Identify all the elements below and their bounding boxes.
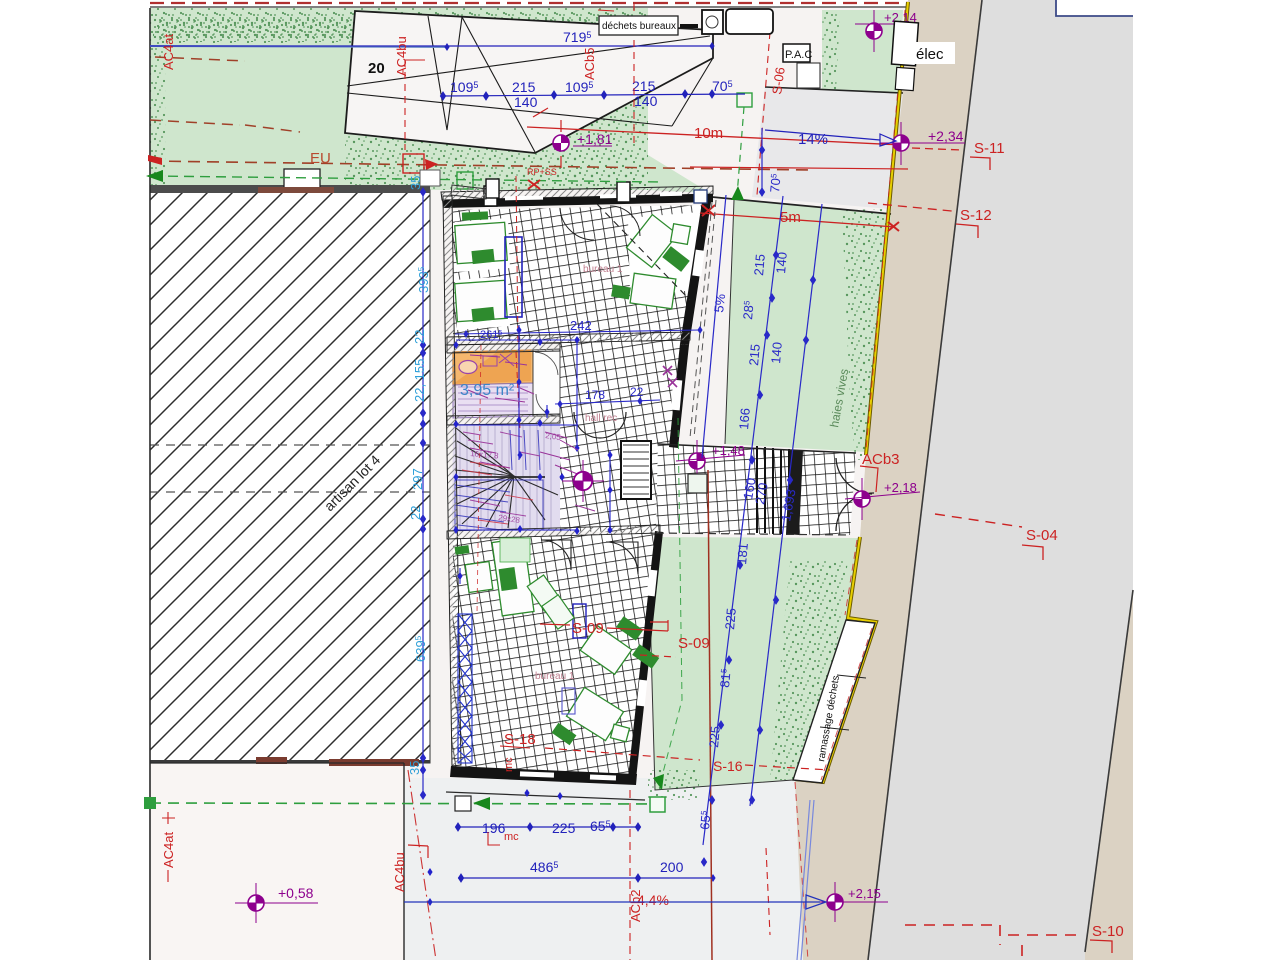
svg-text:5%: 5% <box>711 292 728 313</box>
svg-text:AC4at: AC4at <box>161 33 176 70</box>
svg-text:P.A.C: P.A.C <box>785 49 812 61</box>
svg-text:215: 215 <box>512 79 536 95</box>
svg-text:AC4bu: AC4bu <box>394 36 409 76</box>
svg-text:3,95 m²: 3,95 m² <box>460 382 515 399</box>
svg-text:178: 178 <box>585 388 605 402</box>
svg-text:297: 297 <box>410 468 425 490</box>
svg-text:225: 225 <box>552 820 576 836</box>
svg-text:+2,15: +2,15 <box>848 886 881 901</box>
svg-text:ACb3: ACb3 <box>862 451 900 468</box>
svg-text:S-10: S-10 <box>1092 923 1124 940</box>
svg-text:S-16: S-16 <box>713 758 743 774</box>
svg-text:22: 22 <box>408 506 423 520</box>
svg-text:215: 215 <box>632 78 656 94</box>
svg-text:196: 196 <box>482 820 506 836</box>
svg-text:215: 215 <box>746 343 763 366</box>
svg-text:225: 225 <box>722 607 739 630</box>
svg-text:215: 215 <box>751 253 768 276</box>
svg-text:bureau 1: bureau 1 <box>535 671 575 682</box>
svg-text:élec: élec <box>916 46 944 63</box>
svg-text:5m: 5m <box>780 209 801 226</box>
svg-text:200: 200 <box>660 859 684 875</box>
svg-text:EU: EU <box>310 150 331 167</box>
svg-text:140: 140 <box>768 341 785 364</box>
svg-text:S-09: S-09 <box>678 635 710 652</box>
svg-text:35: 35 <box>408 176 423 190</box>
svg-text:166: 166 <box>736 407 753 430</box>
svg-text:+1,81: +1,81 <box>577 131 613 147</box>
svg-text:242: 242 <box>570 318 592 333</box>
svg-text:hall rec: hall rec <box>585 413 617 424</box>
svg-text:10m: 10m <box>694 125 723 142</box>
svg-text:S-11: S-11 <box>974 140 1005 157</box>
svg-text:S-04: S-04 <box>1026 527 1058 544</box>
svg-text:déchets bureaux: déchets bureaux <box>602 21 676 32</box>
svg-text:S-12: S-12 <box>960 207 992 224</box>
svg-text:+2,18: +2,18 <box>884 480 917 495</box>
svg-text:RP+SS: RP+SS <box>527 167 557 177</box>
svg-text:181: 181 <box>734 542 751 565</box>
svg-text:+1,48: +1,48 <box>712 443 745 458</box>
svg-text:ACb5: ACb5 <box>582 47 597 80</box>
svg-text:AC4at: AC4at <box>161 831 176 868</box>
svg-text:140: 140 <box>773 251 790 274</box>
svg-text:+0,58: +0,58 <box>278 885 314 901</box>
svg-text:225: 225 <box>706 725 723 748</box>
svg-text:22: 22 <box>630 385 644 399</box>
svg-text:AC4bu: AC4bu <box>392 852 407 892</box>
svg-text:S-09: S-09 <box>572 620 604 637</box>
svg-text:22: 22 <box>412 330 427 344</box>
svg-text:S-18: S-18 <box>504 731 536 748</box>
svg-text:bureau 1: bureau 1 <box>583 264 623 275</box>
svg-text:140: 140 <box>634 93 658 109</box>
svg-text:140: 140 <box>514 94 538 110</box>
svg-text:22, 155: 22, 155 <box>412 359 427 402</box>
svg-text:4,4%: 4,4% <box>637 892 669 908</box>
svg-text:35: 35 <box>407 761 422 775</box>
svg-text:20: 20 <box>368 60 385 77</box>
svg-text:mc: mc <box>503 757 515 772</box>
svg-text:mc: mc <box>504 831 519 843</box>
svg-text:+2,34: +2,34 <box>928 128 964 144</box>
